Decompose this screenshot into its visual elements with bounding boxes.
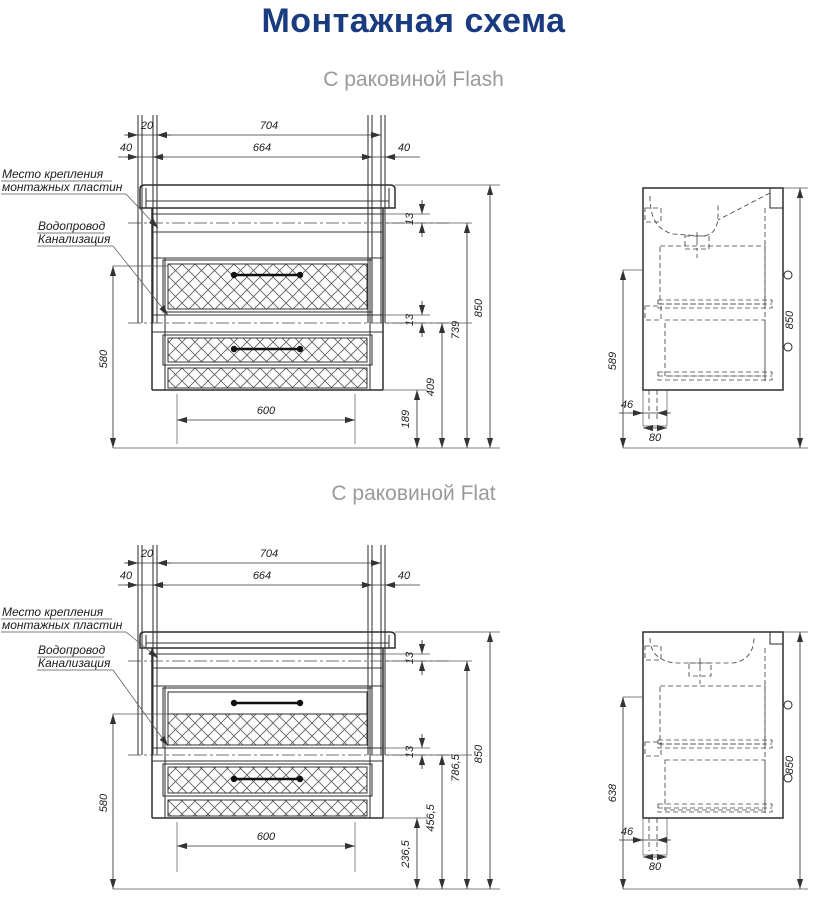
flash-front-view-drawing: 20 704 40 664 40 580 600 13 13 (0, 108, 605, 460)
dim-664-label: 664 (253, 142, 271, 154)
bottom-panel (168, 800, 367, 816)
bottom-dimension-600: 600 (177, 394, 355, 444)
dim-850-side-label: 850 (784, 755, 796, 774)
dim-46-label: 46 (621, 826, 634, 838)
dim-456-label: 456,5 (425, 803, 437, 831)
dim-13-mid-label: 13 (404, 313, 416, 326)
flat-side-view-drawing: 638 46 80 850 (605, 528, 827, 900)
dim-600-label: 600 (257, 831, 276, 843)
dim-850-label: 850 (473, 298, 485, 317)
dim-739-label: 739 (450, 321, 462, 339)
dim-704-label: 704 (260, 548, 278, 560)
plumbing-label-line2: Канализация (38, 232, 111, 246)
plumbing-label-line1: Водопровод (38, 219, 106, 233)
inter-drawer-band (128, 748, 450, 761)
side-dimensions: 638 46 80 850 (607, 632, 808, 889)
dim-850-label: 850 (473, 744, 485, 763)
drawer-2 (163, 335, 372, 365)
sink-basin-profile (650, 638, 754, 684)
drawer-2 (163, 764, 372, 796)
countertop (140, 185, 395, 208)
section-flash-subtitle: С раковиной Flash (0, 68, 827, 92)
dim-80-label: 80 (649, 432, 662, 444)
dim-40-left-label: 40 (120, 142, 133, 154)
mount-plate-label-line2: монтажных пластин (2, 180, 123, 194)
inter-drawer-band (128, 315, 450, 332)
dim-40-left-label: 40 (120, 570, 133, 582)
cabinet-profile (643, 188, 783, 390)
mount-bracket-marks (645, 208, 661, 320)
plumbing-label-line1: Водопровод (38, 643, 106, 657)
section-flat-subtitle: С раковиной Flat (0, 482, 827, 506)
drawer-boxes-dashed (658, 648, 772, 814)
dim-40-right-label: 40 (398, 570, 411, 582)
drawer-1 (163, 260, 372, 312)
dim-46-label: 46 (621, 399, 634, 411)
dim-13-top-label: 13 (404, 212, 416, 225)
dim-236-label: 236,5 (400, 839, 412, 868)
dim-600-label: 600 (257, 405, 276, 417)
plumbing-annotation: Водопровод Канализация (37, 643, 168, 746)
dim-20-label: 20 (140, 120, 154, 132)
dim-638-label: 638 (607, 783, 619, 802)
flat-front-view-drawing: 20 704 40 664 40 580 600 13 13 (0, 528, 605, 900)
dim-850-side-label: 850 (784, 310, 796, 329)
dim-786-label: 786,5 (450, 753, 462, 781)
side-dimensions: 589 46 80 850 (607, 188, 808, 448)
flash-side-view-drawing: 589 46 80 850 (605, 108, 827, 460)
mount-bracket-marks (645, 646, 661, 756)
dim-20-label: 20 (140, 548, 154, 560)
mount-plate-label-line1: Место крепления (2, 605, 104, 619)
dim-580-label: 580 (98, 349, 110, 368)
mount-plate-label-line1: Место крепления (2, 167, 104, 181)
bottom-panel (168, 368, 367, 388)
dim-409-label: 409 (425, 378, 437, 396)
top-dimensions: 20 704 40 664 40 (118, 120, 420, 157)
right-dimensions: 13 13 189 409 739 850 (113, 185, 500, 448)
dim-664-label: 664 (253, 570, 271, 582)
drawer-1 (163, 688, 372, 748)
drawer-1-handle (231, 700, 303, 706)
plumbing-label-line2: Канализация (38, 656, 111, 670)
dim-580-label: 580 (98, 793, 110, 812)
mount-plate-label-line2: монтажных пластин (2, 618, 123, 632)
dim-13-top-label: 13 (404, 651, 416, 664)
sink-basin-profile (650, 193, 770, 258)
page-title: Монтажная схема (0, 2, 827, 41)
dim-40-right-label: 40 (398, 142, 411, 154)
drain-channel (643, 818, 667, 855)
dim-80-label: 80 (649, 861, 662, 873)
countertop (140, 632, 395, 648)
dim-589-label: 589 (607, 352, 619, 370)
dim-189-label: 189 (400, 410, 412, 428)
top-dimensions: 20 704 40 664 40 (118, 548, 420, 585)
bottom-dimension-600: 600 (177, 822, 355, 872)
dim-704-label: 704 (260, 120, 278, 132)
plumbing-annotation: Водопровод Канализация (37, 219, 168, 315)
drain-channel (643, 390, 667, 426)
dim-13-mid-label: 13 (404, 745, 416, 758)
